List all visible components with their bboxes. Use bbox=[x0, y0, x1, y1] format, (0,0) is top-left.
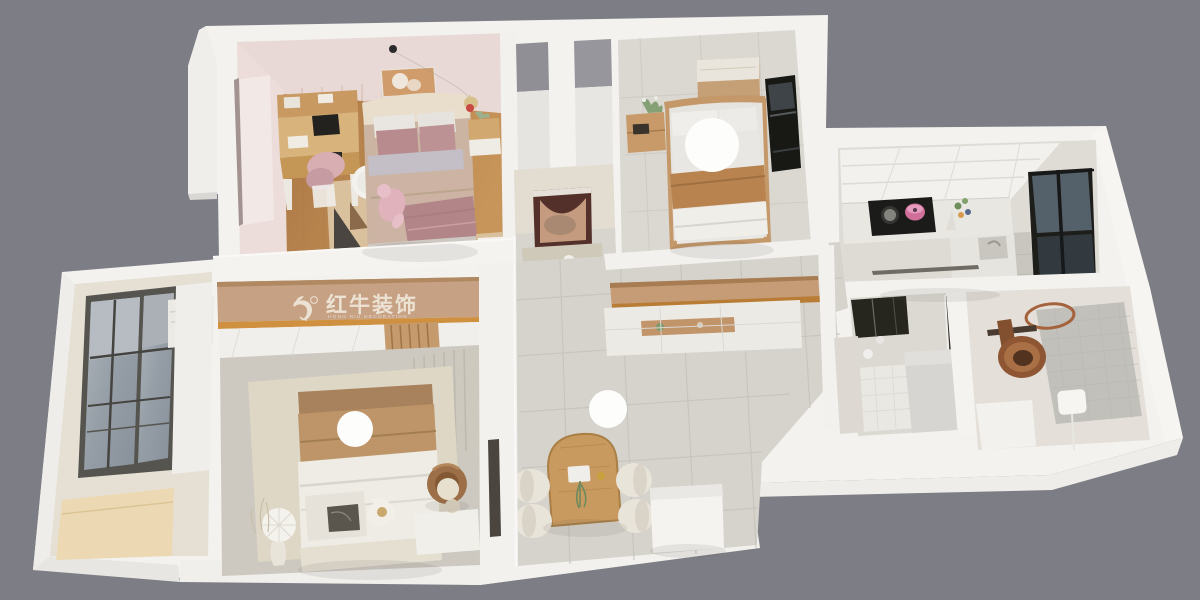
svg-text:HONG NIU DECORATION: HONG NIU DECORATION bbox=[328, 314, 408, 320]
svg-text:红牛装饰: 红牛装饰 bbox=[326, 293, 418, 317]
